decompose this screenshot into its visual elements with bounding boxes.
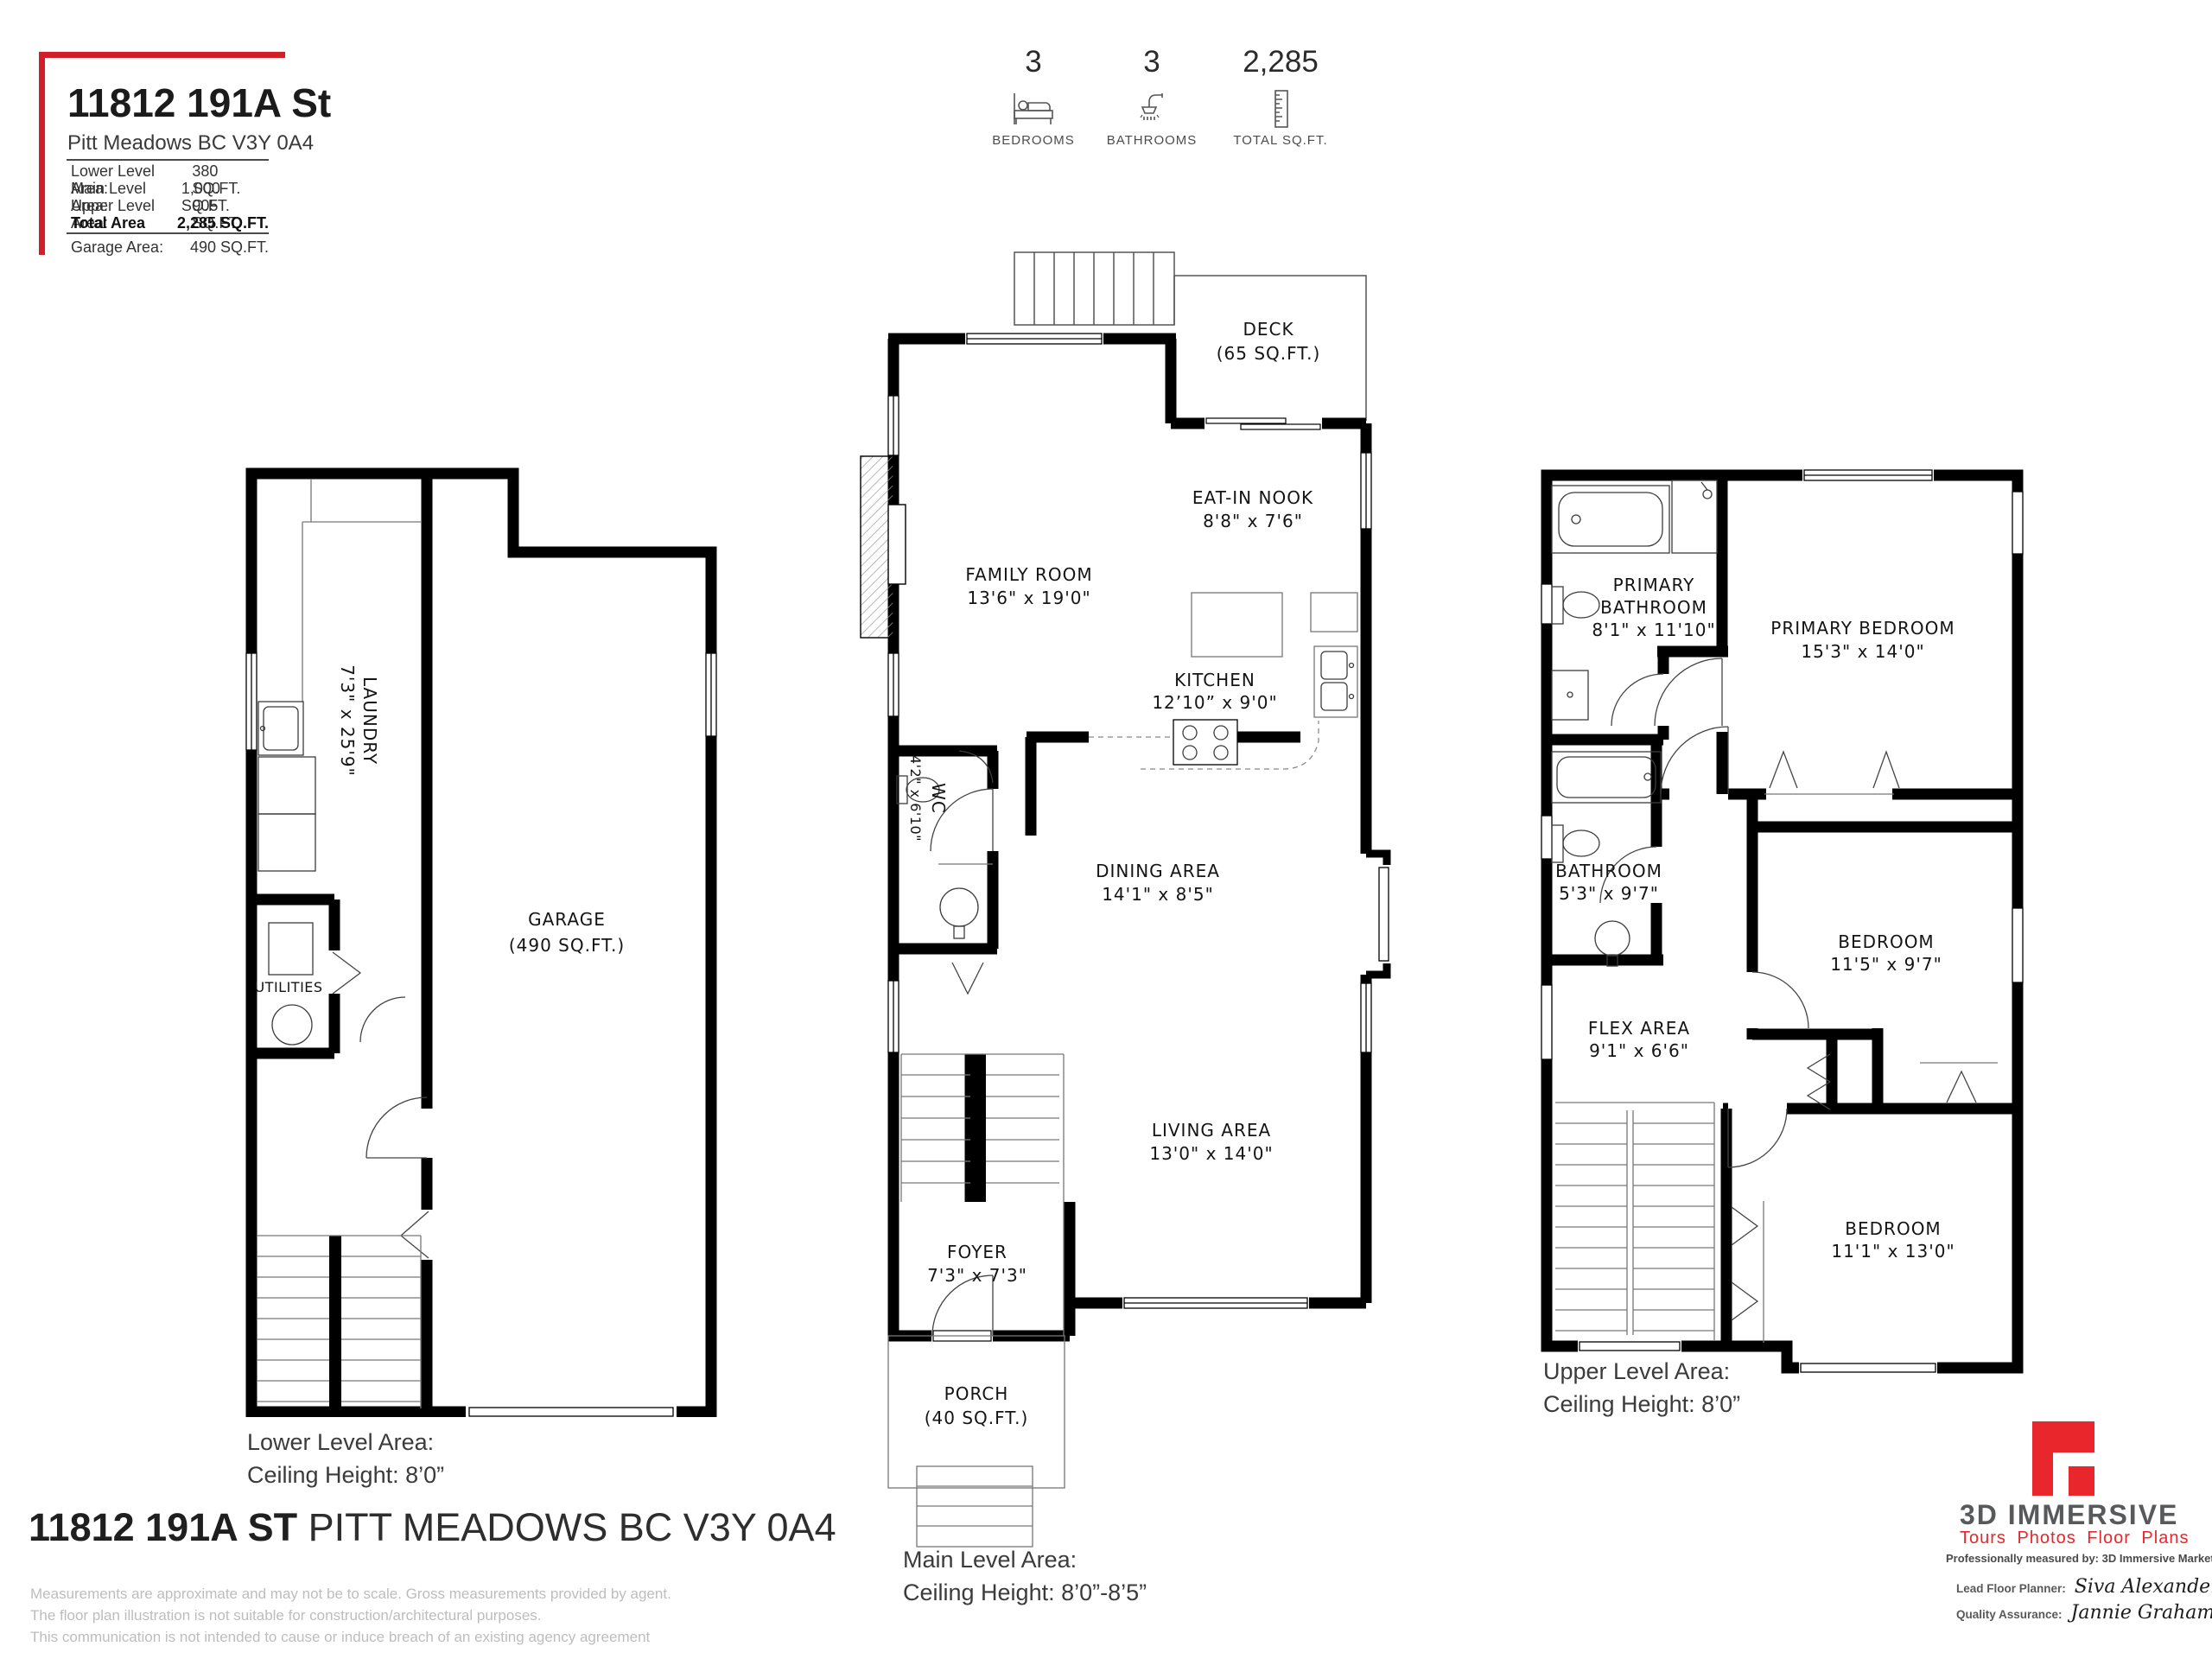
disclaimer-line: Measurements are approximate and may not… [30, 1583, 671, 1605]
pedestal-sink-icon [940, 888, 978, 926]
page-title: 11812 191A St [67, 79, 331, 126]
main-caption: Main Level Area: Ceiling Height: 8’0”-8’… [903, 1543, 1147, 1609]
kitchen-island-icon [1192, 593, 1282, 657]
area-value: 1,000 SQ.FT. [181, 180, 269, 197]
area-value: 490 SQ.FT. [190, 238, 269, 256]
closet-hanger-icon [1873, 752, 1899, 788]
sink-icon [1321, 683, 1347, 710]
room-dims-foyer: 7'3" x 7'3" [927, 1265, 1027, 1286]
bedrooms-count: 3 [964, 45, 1103, 79]
room-dims-primary-bedroom: 15'3" x 14'0" [1801, 641, 1924, 662]
room-label-porch: PORCH [944, 1383, 1009, 1404]
lead-planner-label: Lead Floor Planner: [1956, 1582, 2066, 1595]
table-row: Main Level Area: 1,000 SQ.FT. [71, 180, 269, 197]
room-label-primary-bedroom: PRIMARY BEDROOM [1770, 618, 1955, 639]
room-dims-flex: 9'1" x 6'6" [1589, 1040, 1689, 1061]
room-label-deck: DECK [1243, 319, 1294, 340]
area-value: 905 SQ.FT. [192, 197, 269, 214]
footer-address-city: PITT MEADOWS BC V3Y 0A4 [297, 1505, 836, 1549]
accent-rule-top [39, 52, 285, 58]
stairs-icon [901, 1075, 970, 1183]
bathtub-icon [1552, 486, 1669, 553]
room-label-bathroom: BATHROOM [1555, 861, 1662, 881]
main-level-plan: DECK (65 SQ.FT.) EAT-IN NOOK 8'8" x 7'6"… [855, 249, 1404, 1558]
bedrooms-label: BEDROOMS [964, 133, 1103, 148]
lead-planner-row: Lead Floor Planner:Siva Alexander [1956, 1576, 2212, 1598]
footer-address: 11812 191A ST PITT MEADOWS BC V3Y 0A4 [29, 1505, 836, 1550]
deck-stairs-icon [1034, 252, 1154, 325]
area-value: 2,285 SQ.FT. [177, 214, 269, 232]
washer-icon [258, 757, 315, 814]
area-label: Main Level Area: [71, 180, 181, 197]
bathrooms-label: BATHROOMS [1083, 133, 1221, 148]
main-caption-line2: Ceiling Height: 8’0”-8’5” [903, 1576, 1147, 1609]
qa-label: Quality Assurance: [1956, 1608, 2063, 1621]
table-row-total: Total Area 2,285 SQ.FT. [71, 214, 269, 232]
lower-caption: Lower Level Area: Ceiling Height: 8’0” [247, 1426, 444, 1491]
area-value: 380 SQ.FT. [192, 162, 269, 180]
room-label-bedroom2: BEDROOM [1845, 1218, 1941, 1239]
lower-level-plan: LAUNDRY 7'3" x 25'9" UTILITIES GARAGE (4… [245, 467, 741, 1417]
disclaimers: Measurements are approximate and may not… [30, 1583, 671, 1648]
pedestal-sink-icon [1595, 921, 1630, 956]
closet-hanger-icon [1947, 1071, 1976, 1103]
furnace-icon [269, 923, 313, 975]
room-label-laundry: LAUNDRY [359, 677, 380, 765]
room-label-primary-bathroom-1: PRIMARY [1613, 575, 1695, 595]
room-dims-laundry: 7'3" x 25'9" [337, 664, 358, 777]
room-dims-garage: (490 SQ.FT.) [509, 935, 625, 956]
fridge-icon [1311, 593, 1357, 632]
stat-bedrooms: 3 BEDROOMS [964, 45, 1103, 148]
area-label: Lower Level Area: [71, 162, 192, 180]
room-label-kitchen: KITCHEN [1174, 670, 1255, 690]
sink-icon [1321, 652, 1347, 679]
total-sqft-count: 2,285 [1211, 45, 1350, 79]
room-label-living: LIVING AREA [1152, 1120, 1271, 1141]
area-label: Garage Area: [71, 238, 163, 256]
company-logo-icon [2032, 1421, 2094, 1500]
bathrooms-count: 3 [1083, 45, 1221, 79]
qa-signature: Jannie Graham [2071, 1602, 2212, 1624]
lower-walls [246, 474, 711, 1412]
floor-plan-page: 11812 191A St Pitt Meadows BC V3Y 0A4 Lo… [0, 0, 2212, 1659]
stat-total-sqft: 2,285 TOTAL SQ.FT. [1211, 45, 1350, 148]
shower-icon [1083, 88, 1221, 130]
closet-hanger-icon [1732, 1207, 1758, 1320]
room-label-flex: FLEX AREA [1588, 1018, 1690, 1039]
room-dims-family-room: 13'6" x 19'0" [967, 588, 1090, 608]
room-dims-eat-in-nook: 8'8" x 7'6" [1203, 511, 1303, 531]
bed-icon [964, 88, 1103, 130]
company-tagline: Tours Photos Floor Plans [1960, 1529, 2167, 1548]
lower-doors [333, 952, 429, 1258]
room-label-primary-bathroom-2: BATHROOM [1600, 597, 1707, 618]
room-label-garage: GARAGE [528, 909, 606, 930]
closet-hanger-icon [1770, 752, 1797, 788]
upper-level-plan: PRIMARY BATHROOM 8'1" x 11'10" PRIMARY B… [1540, 467, 2028, 1382]
stair-wall [329, 1236, 341, 1408]
company-name: 3D IMMERSIVE [1960, 1499, 2167, 1531]
area-table: Lower Level Area: 380 SQ.FT. Main Level … [71, 162, 269, 256]
room-label-foyer: FOYER [947, 1242, 1007, 1262]
room-label-bedroom1: BEDROOM [1838, 931, 1934, 952]
stove-icon [1173, 720, 1237, 765]
divider [67, 232, 269, 234]
total-sqft-label: TOTAL SQ.FT. [1211, 133, 1350, 148]
stat-bathrooms: 3 BATHROOMS [1083, 45, 1221, 148]
lower-caption-line2: Ceiling Height: 8’0” [247, 1459, 444, 1491]
room-label-wc: WC [928, 783, 949, 814]
room-label-family-room: FAMILY ROOM [965, 564, 1092, 585]
room-dims-primary-bathroom: 8'1" x 11'10" [1592, 620, 1715, 640]
lead-planner-signature: Siva Alexander [2075, 1576, 2212, 1598]
page-subtitle: Pitt Meadows BC V3Y 0A4 [67, 131, 314, 156]
room-dims-deck: (65 SQ.FT.) [1217, 343, 1321, 364]
table-row: Upper Level Area: 905 SQ.FT. [71, 197, 269, 214]
water-tank-icon [272, 1005, 312, 1045]
stairs-icon [1555, 1123, 1627, 1331]
divider [67, 159, 269, 161]
disclaimer-line: The floor plan illustration is not suita… [30, 1605, 671, 1626]
room-dims-bedroom1: 11'5" x 9'7" [1830, 954, 1942, 975]
room-dims-bedroom2: 11'1" x 13'0" [1831, 1241, 1955, 1262]
upper-caption: Upper Level Area: Ceiling Height: 8’0” [1543, 1355, 1740, 1421]
table-row: Garage Area: 490 SQ.FT. [71, 238, 269, 256]
room-label-dining: DINING AREA [1096, 861, 1220, 881]
accent-rule-left [39, 52, 45, 255]
lower-caption-line1: Lower Level Area: [247, 1426, 444, 1459]
stairs-icon [257, 1256, 329, 1402]
main-openings [887, 331, 1391, 1344]
room-dims-living: 13'0" x 14'0" [1149, 1143, 1273, 1164]
disclaimer-line: This communication is not intended to ca… [30, 1626, 671, 1648]
dryer-icon [258, 814, 315, 871]
room-label-utilities: UTILITIES [254, 979, 322, 995]
toilet-icon [1552, 587, 1563, 624]
area-label: Upper Level Area: [71, 197, 192, 214]
upper-caption-line1: Upper Level Area: [1543, 1355, 1740, 1388]
main-caption-line1: Main Level Area: [903, 1543, 1147, 1576]
room-dims-kitchen: 12’10” x 9'0" [1152, 692, 1277, 713]
room-dims-dining: 14'1" x 8'5" [1102, 884, 1214, 905]
qa-row: Quality Assurance:Jannie Graham [1956, 1602, 2212, 1624]
footer-address-street: 11812 191A ST [29, 1505, 297, 1549]
upper-caption-line2: Ceiling Height: 8’0” [1543, 1388, 1740, 1421]
room-dims-porch: (40 SQ.FT.) [925, 1408, 1029, 1428]
toilet-icon [1552, 825, 1563, 862]
table-row: Lower Level Area: 380 SQ.FT. [71, 162, 269, 180]
vanity-sink-icon [1552, 671, 1588, 720]
room-label-eat-in-nook: EAT-IN NOOK [1192, 487, 1313, 508]
measured-by: Professionally measured by: 3D Immersive… [1946, 1552, 2188, 1565]
room-dims-bathroom: 5'3" x 9'7" [1559, 883, 1659, 904]
area-label: Total Area [71, 214, 145, 232]
ruler-icon [1211, 88, 1350, 130]
room-dims-wc: 4'2" x 6'10" [907, 755, 924, 842]
